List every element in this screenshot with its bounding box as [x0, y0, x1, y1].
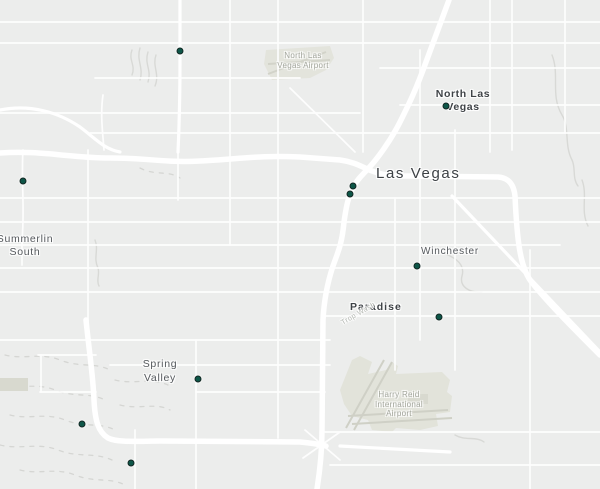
map-marker[interactable] [177, 48, 184, 55]
roads-layer [0, 0, 600, 489]
map-marker[interactable] [414, 263, 421, 270]
town-label-winchester: Winchester [421, 246, 479, 257]
map-marker[interactable] [350, 183, 357, 190]
map-marker[interactable] [347, 191, 354, 198]
map-marker[interactable] [195, 376, 202, 383]
map-canvas[interactable]: Las Vegas North Las Vegas Summerlin Sout… [0, 0, 600, 489]
airport-label-north-las-vegas: North Las Vegas Airport [269, 51, 337, 70]
map-marker[interactable] [436, 314, 443, 321]
city-label-north-las-vegas: North Las Vegas [432, 88, 494, 114]
map-marker[interactable] [20, 178, 27, 185]
city-label-las-vegas: Las Vegas [376, 165, 460, 182]
town-label-spring-valley: Spring Valley [131, 357, 189, 385]
town-label-summerlin-south: Summerlin South [0, 233, 54, 259]
map-marker[interactable] [79, 421, 86, 428]
airport-label-harry-reid: Harry Reid International Airport [362, 390, 436, 419]
map-marker[interactable] [128, 460, 135, 467]
map-marker[interactable] [443, 103, 450, 110]
